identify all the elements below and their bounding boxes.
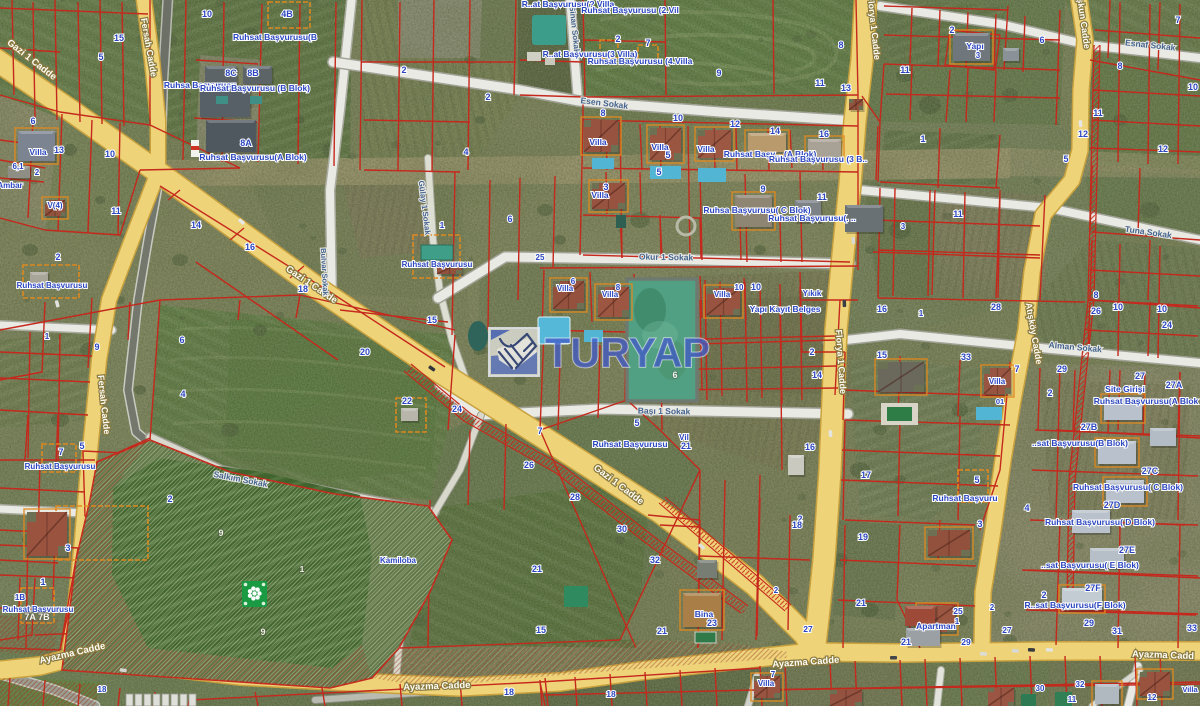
svg-text:2: 2 [167, 494, 172, 504]
svg-text:2: 2 [615, 34, 620, 44]
svg-text:27: 27 [1002, 625, 1012, 635]
svg-text:7: 7 [645, 38, 650, 48]
svg-text:Villa: Villa [1182, 685, 1198, 694]
svg-text:Ayazma Cadd: Ayazma Cadd [1132, 649, 1194, 662]
svg-text:..sat Başvurusu( E Blok): ..sat Başvurusu( E Blok) [1041, 560, 1139, 570]
svg-text:2: 2 [485, 92, 490, 102]
svg-text:2: 2 [401, 65, 406, 75]
svg-text:27C: 27C [1142, 466, 1159, 476]
svg-text:9: 9 [760, 184, 765, 194]
svg-text:7: 7 [58, 447, 63, 457]
svg-text:7: 7 [1014, 364, 1019, 374]
svg-text:22: 22 [402, 396, 412, 406]
svg-text:8B: 8B [247, 68, 259, 78]
svg-text:Ruhsat Başvurusu(A Blok): Ruhsat Başvurusu(A Blok) [199, 152, 307, 162]
svg-text:8: 8 [1117, 61, 1122, 71]
svg-text:5: 5 [656, 167, 661, 177]
svg-text:11: 11 [900, 65, 910, 75]
svg-text:25: 25 [953, 606, 963, 616]
svg-text:2: 2 [809, 347, 814, 357]
svg-text:V(4): V(4) [47, 201, 62, 210]
svg-text:1: 1 [440, 220, 445, 230]
svg-text:12: 12 [1158, 144, 1168, 154]
svg-text:Villa: Villa [989, 377, 1006, 386]
svg-text:21: 21 [681, 441, 691, 451]
svg-text:10: 10 [202, 9, 212, 19]
svg-text:27D: 27D [1104, 500, 1121, 510]
svg-text:Villa: Villa [589, 137, 607, 147]
svg-text:Ruhsat Başvurusu: Ruhsat Başvurusu [592, 439, 667, 449]
svg-text:..sat Başvurusu(B Blok): ..sat Başvurusu(B Blok) [1032, 438, 1128, 448]
svg-text:7: 7 [771, 670, 776, 679]
svg-text:11: 11 [815, 78, 825, 88]
svg-text:4: 4 [180, 389, 185, 399]
svg-text:15: 15 [427, 315, 437, 325]
svg-text:Villa: Villa [697, 144, 715, 154]
svg-text:27: 27 [803, 624, 813, 634]
svg-text:Villa: Villa [758, 679, 775, 688]
svg-text:18: 18 [98, 685, 107, 694]
svg-text:14: 14 [191, 220, 201, 230]
svg-text:16: 16 [805, 442, 815, 452]
svg-text:24: 24 [1162, 320, 1172, 330]
svg-text:3: 3 [977, 519, 982, 529]
svg-text:11: 11 [111, 206, 121, 216]
svg-text:29: 29 [1057, 364, 1067, 374]
svg-text:12: 12 [730, 119, 740, 129]
svg-text:3: 3 [65, 543, 70, 553]
svg-text:Site Girişi: Site Girişi [1105, 384, 1145, 394]
svg-text:6: 6 [1039, 35, 1044, 45]
svg-text:TURYAP: TURYAP [545, 329, 710, 376]
svg-text:30: 30 [1036, 684, 1045, 693]
svg-text:6: 6 [179, 335, 184, 345]
svg-text:2: 2 [1047, 388, 1052, 398]
svg-text:33: 33 [961, 352, 971, 362]
svg-text:27E: 27E [1119, 545, 1135, 555]
svg-text:Ruhsat Başvuru: Ruhsat Başvuru [932, 493, 997, 503]
svg-text:2: 2 [774, 586, 779, 595]
svg-text:1B: 1B [15, 593, 25, 602]
svg-text:R..sat Başvurusu(F Blok): R..sat Başvurusu(F Blok) [1024, 600, 1125, 610]
svg-text:27F: 27F [1085, 583, 1101, 593]
svg-text:21: 21 [856, 598, 866, 608]
svg-text:8C: 8C [225, 68, 237, 78]
svg-text:32: 32 [1076, 680, 1085, 689]
svg-text:6: 6 [30, 116, 35, 126]
svg-text:Ambar: Ambar [0, 181, 23, 190]
svg-text:10: 10 [1157, 304, 1167, 314]
svg-text:8: 8 [600, 108, 605, 118]
svg-text:21: 21 [532, 564, 542, 574]
svg-text:4: 4 [463, 147, 468, 157]
svg-text:Ruhsat Başvurusu( C Blok): Ruhsat Başvurusu( C Blok) [1073, 482, 1183, 492]
svg-text:23: 23 [707, 618, 717, 628]
svg-text:25: 25 [536, 253, 545, 262]
svg-text:2: 2 [1041, 590, 1046, 600]
svg-text:5: 5 [634, 418, 639, 428]
svg-text:18: 18 [606, 689, 616, 699]
svg-text:Yapı: Yapı [966, 41, 983, 51]
svg-text:10: 10 [735, 283, 744, 292]
svg-text:3: 3 [603, 182, 608, 192]
svg-text:15: 15 [536, 625, 546, 635]
svg-text:5: 5 [974, 475, 979, 485]
svg-text:Ruhsat Başvurusu: Ruhsat Başvurusu [402, 260, 473, 269]
svg-text:18: 18 [298, 284, 308, 294]
svg-text:Yapı Kayıt Belges: Yapı Kayıt Belges [750, 304, 821, 314]
svg-text:1: 1 [40, 577, 45, 587]
svg-text:24: 24 [452, 404, 462, 414]
svg-text:9: 9 [716, 68, 721, 78]
svg-text:14: 14 [770, 126, 780, 136]
svg-text:12: 12 [1148, 693, 1157, 702]
svg-text:6: 6 [571, 277, 576, 286]
svg-text:2: 2 [990, 603, 995, 612]
svg-text:30: 30 [617, 524, 627, 534]
svg-text:7A 7B: 7A 7B [24, 612, 50, 622]
svg-text:Okur 1 Sokak: Okur 1 Sokak [639, 252, 694, 263]
svg-text:11: 11 [1068, 695, 1077, 704]
svg-text:5: 5 [665, 150, 670, 160]
svg-text:2: 2 [55, 252, 60, 262]
svg-text:4B: 4B [281, 9, 293, 19]
svg-text:15: 15 [114, 33, 124, 43]
svg-text:3: 3 [901, 222, 906, 231]
svg-text:27A: 27A [1166, 380, 1183, 390]
svg-text:Ayazma Cadde: Ayazma Cadde [403, 680, 471, 693]
svg-text:16: 16 [245, 242, 255, 252]
svg-text:Ruhsat Başvurusu: Ruhsat Başvurusu [25, 462, 96, 471]
svg-text:29: 29 [1084, 618, 1094, 628]
svg-text:01: 01 [996, 397, 1004, 406]
svg-text:27: 27 [1135, 371, 1145, 381]
svg-text:8A: 8A [240, 138, 252, 148]
svg-text:10: 10 [1188, 82, 1198, 92]
svg-text:Ruhsat Başvurusu(A Blok: Ruhsat Başvurusu(A Blok [1094, 396, 1199, 406]
svg-text:31: 31 [1112, 626, 1122, 636]
svg-text:33: 33 [1187, 623, 1197, 633]
svg-text:1: 1 [920, 134, 925, 144]
svg-text:6,1: 6,1 [12, 162, 24, 171]
svg-text:10: 10 [751, 282, 761, 292]
svg-text:Ruhsat Başvurusu(B: Ruhsat Başvurusu(B [233, 32, 317, 42]
svg-text:Ruhsat Başvurusu (4.Villa: Ruhsat Başvurusu (4.Villa [588, 56, 693, 66]
svg-text:4: 4 [1024, 503, 1029, 513]
svg-text:Villa: Villa [29, 147, 47, 157]
svg-text:Kamiloba: Kamiloba [380, 556, 417, 565]
svg-text:16: 16 [819, 129, 829, 139]
svg-text:21: 21 [901, 637, 911, 647]
svg-text:18: 18 [792, 520, 802, 530]
svg-text:6: 6 [507, 214, 512, 224]
svg-text:28: 28 [570, 492, 580, 502]
svg-text:1: 1 [45, 331, 50, 341]
svg-text:Villa: Villa [714, 290, 731, 299]
svg-text:Ruhsat Başvurusu (2.Vil: Ruhsat Başvurusu (2.Vil [581, 5, 679, 15]
svg-text:26: 26 [524, 460, 534, 470]
svg-text:11: 11 [953, 209, 963, 219]
svg-text:1: 1 [919, 309, 924, 318]
svg-text:13: 13 [54, 145, 64, 155]
svg-text:13: 13 [841, 83, 851, 93]
svg-text:Ruhsat Başvurusu: Ruhsat Başvurusu [17, 281, 88, 290]
svg-text:Yıkık: Yıkık [803, 289, 822, 298]
svg-text:17: 17 [861, 470, 871, 480]
svg-text:9: 9 [260, 627, 265, 637]
svg-text:16: 16 [877, 304, 887, 314]
svg-text:10: 10 [673, 113, 683, 123]
svg-text:8: 8 [1093, 290, 1098, 300]
svg-text:Apartman: Apartman [916, 621, 956, 631]
svg-text:3: 3 [976, 51, 981, 60]
svg-text:29: 29 [961, 637, 971, 647]
svg-text:7: 7 [537, 426, 542, 436]
svg-text:5: 5 [98, 52, 103, 62]
svg-text:7: 7 [1175, 15, 1180, 25]
svg-text:27B: 27B [1081, 422, 1098, 432]
svg-text:8: 8 [616, 283, 621, 292]
svg-text:28: 28 [991, 302, 1001, 312]
svg-text:8: 8 [838, 40, 843, 50]
svg-text:21: 21 [657, 626, 667, 636]
svg-text:Ruhsat Başvurusu( D Blok): Ruhsat Başvurusu( D Blok) [1045, 517, 1155, 527]
svg-text:10: 10 [1113, 302, 1123, 312]
svg-text:20: 20 [360, 347, 370, 357]
svg-text:2: 2 [949, 25, 954, 35]
svg-text:26: 26 [1091, 306, 1101, 316]
svg-text:11: 11 [1093, 108, 1103, 118]
svg-text:12: 12 [1078, 129, 1088, 139]
svg-text:15: 15 [877, 350, 887, 360]
svg-text:1: 1 [300, 564, 305, 574]
svg-text:Ruhsat Başvurusu (B Blok): Ruhsat Başvurusu (B Blok) [200, 83, 310, 93]
svg-text:Ruhsat Başvurusu(. ..: Ruhsat Başvurusu(. .. [768, 213, 855, 223]
svg-text:1: 1 [955, 617, 960, 626]
svg-text:18: 18 [504, 687, 514, 697]
svg-text:14: 14 [812, 370, 822, 380]
svg-text:5: 5 [79, 441, 84, 451]
svg-text:19: 19 [858, 532, 868, 542]
svg-text:11: 11 [817, 192, 827, 202]
svg-text:9: 9 [94, 342, 99, 352]
svg-text:Ruhsat Başvurusu (3 B..: Ruhsat Başvurusu (3 B.. [769, 154, 867, 164]
svg-text:32: 32 [650, 555, 660, 565]
svg-text:10: 10 [105, 149, 115, 159]
svg-text:9: 9 [218, 528, 223, 538]
svg-text:Başı 1 Sokak: Başı 1 Sokak [638, 406, 691, 417]
svg-text:2: 2 [35, 168, 40, 177]
svg-text:5: 5 [1063, 154, 1068, 164]
